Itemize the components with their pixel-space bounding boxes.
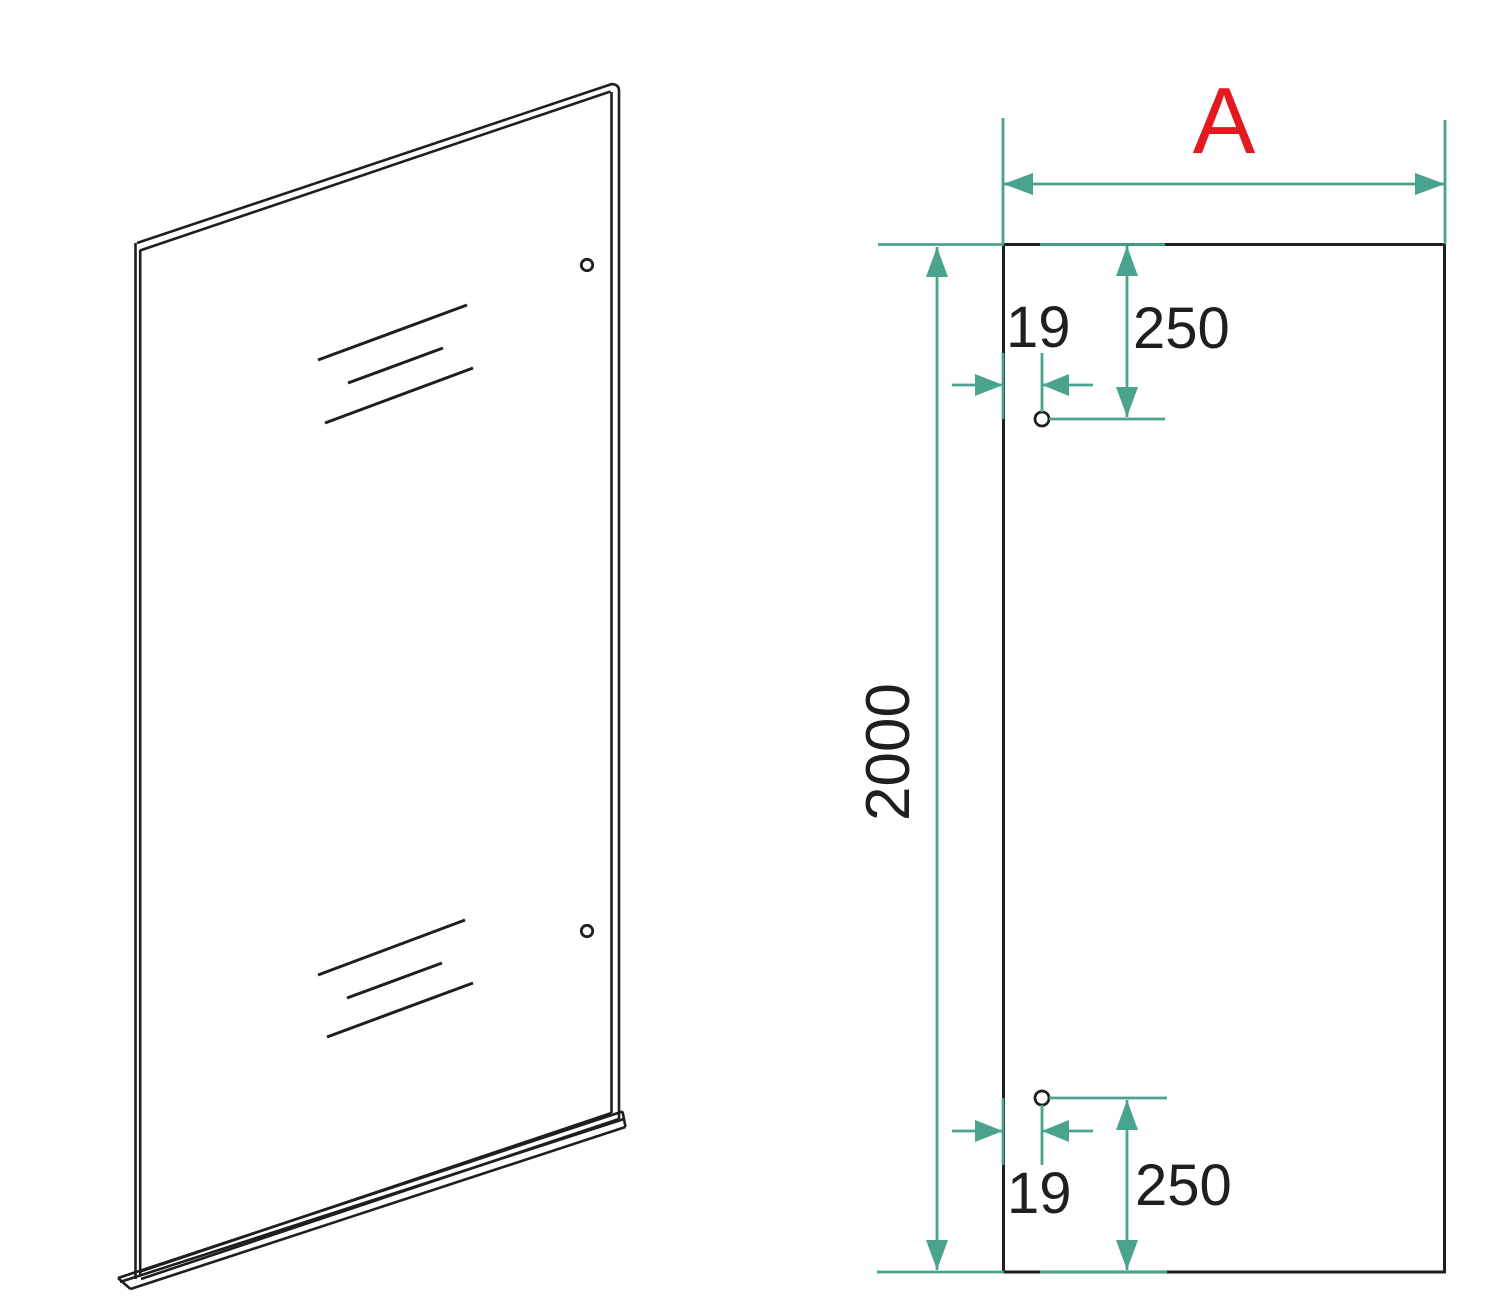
bottom-hole-bottom-offset-label: 250 [1135,1153,1232,1218]
reflection-line [325,368,473,423]
arrowhead-down-icon [1116,1240,1138,1270]
width-dimension: A [1003,68,1445,244]
arrowhead-left-icon [1042,374,1069,396]
reflection-line [347,963,442,998]
arrowhead-left-icon [1003,173,1033,195]
drawing-canvas: A 2000 19 250 [0,0,1509,1316]
arrowhead-up-icon [1116,1100,1138,1130]
arrowhead-up-icon [926,247,948,277]
top-mounting-hole [1035,412,1049,426]
reflection-line [327,983,473,1037]
panel-top-edge-outer [137,84,619,243]
base-rail-bottom-edge [131,1127,626,1289]
panel-top-edge-inner [140,92,611,251]
top-hole-top-offset-label: 250 [1133,296,1230,361]
dimension-drawing: A 2000 19 250 [854,68,1445,1272]
arrowhead-down-icon [926,1240,948,1270]
top-mounting-hole-3d [581,259,592,270]
bottom-mounting-hole-3d [581,925,592,936]
reflection-line [318,920,465,975]
reflection-lines-lower [318,920,473,1037]
base-rail-top-edge [118,1112,623,1279]
bottom-hole-edge-offset-label: 19 [1007,1161,1072,1226]
panel-outline [136,84,620,1279]
arrowhead-left-icon [1042,1120,1069,1142]
base-rail-right-cap [623,1112,626,1128]
reflection-line [318,305,467,360]
top-hole-edge-offset-label: 19 [1006,295,1071,360]
top-hole-dimensions: 19 250 [952,246,1230,419]
technical-drawing-page: A 2000 19 250 [0,0,1509,1316]
height-dimension: 2000 [854,245,1167,1273]
reflection-line [348,348,443,383]
width-dimension-label: A [1193,68,1256,173]
height-dimension-label: 2000 [854,683,923,821]
arrowhead-up-icon [1116,246,1138,276]
arrowhead-right-icon [975,1120,1003,1142]
arrowhead-right-icon [975,374,1003,396]
arrowhead-right-icon [1415,173,1445,195]
panel-front-outline [1004,245,1445,1273]
reflection-lines-upper [318,305,473,423]
glass-panel-3d-view [118,84,626,1289]
base-rail-front-edge [120,1119,624,1282]
bottom-hole-dimensions: 19 250 [952,1098,1232,1270]
bottom-mounting-hole [1035,1091,1049,1105]
arrowhead-down-icon [1116,387,1138,417]
